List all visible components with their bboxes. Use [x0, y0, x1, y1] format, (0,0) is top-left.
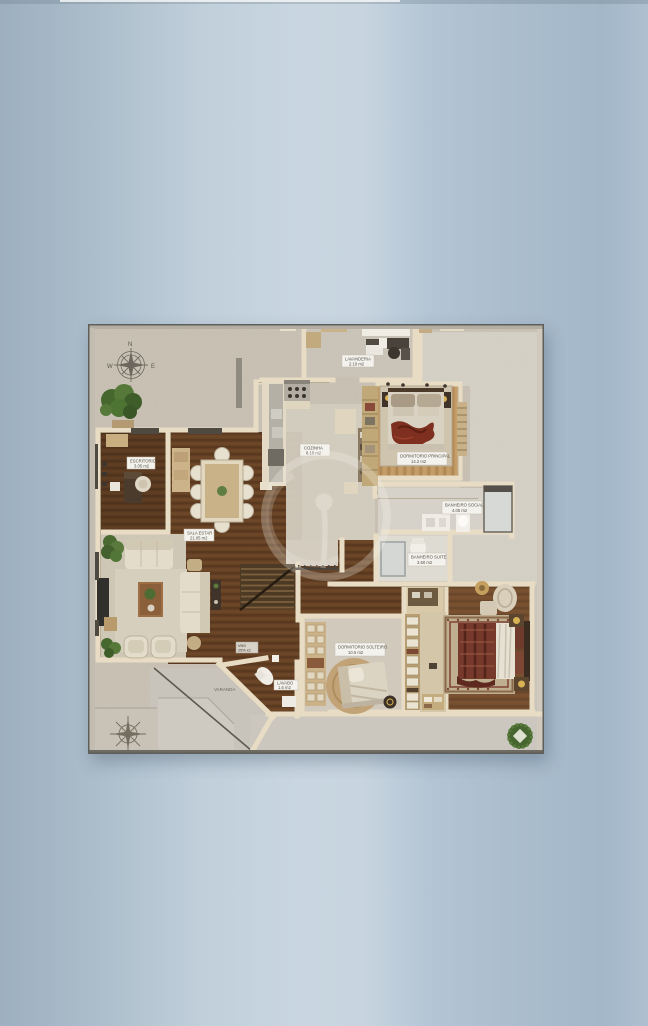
svg-text:3.60 m2: 3.60 m2: [417, 560, 433, 565]
svg-text:E: E: [151, 364, 155, 370]
svg-text:VNS: VNS: [238, 644, 246, 648]
svg-text:VARANDA: VARANDA: [214, 687, 235, 692]
svg-text:W: W: [107, 364, 113, 370]
svg-text:3.05 m2: 3.05 m2: [134, 464, 150, 469]
svg-text:DORMITORIO PRINCIPAL: DORMITORIO PRINCIPAL: [400, 454, 451, 459]
svg-text:1.6 m2: 1.6 m2: [278, 685, 291, 690]
svg-text:BANHEIRO SOCIAL: BANHEIRO SOCIAL: [445, 503, 484, 508]
svg-text:14.2 m2: 14.2 m2: [411, 459, 427, 464]
svg-text:2.10 m2: 2.10 m2: [349, 362, 365, 367]
svg-text:DORMITORIO SOLTEIRO: DORMITORIO SOLTEIRO: [338, 645, 388, 650]
svg-text:N: N: [128, 342, 132, 348]
svg-text:25% x2: 25% x2: [238, 649, 251, 653]
svg-text:21.05 m2: 21.05 m2: [190, 536, 208, 541]
svg-text:10.5 m2: 10.5 m2: [348, 650, 364, 655]
svg-text:BANHEIRO SUITE: BANHEIRO SUITE: [411, 555, 447, 560]
svg-text:4.05 m2: 4.05 m2: [452, 508, 468, 513]
